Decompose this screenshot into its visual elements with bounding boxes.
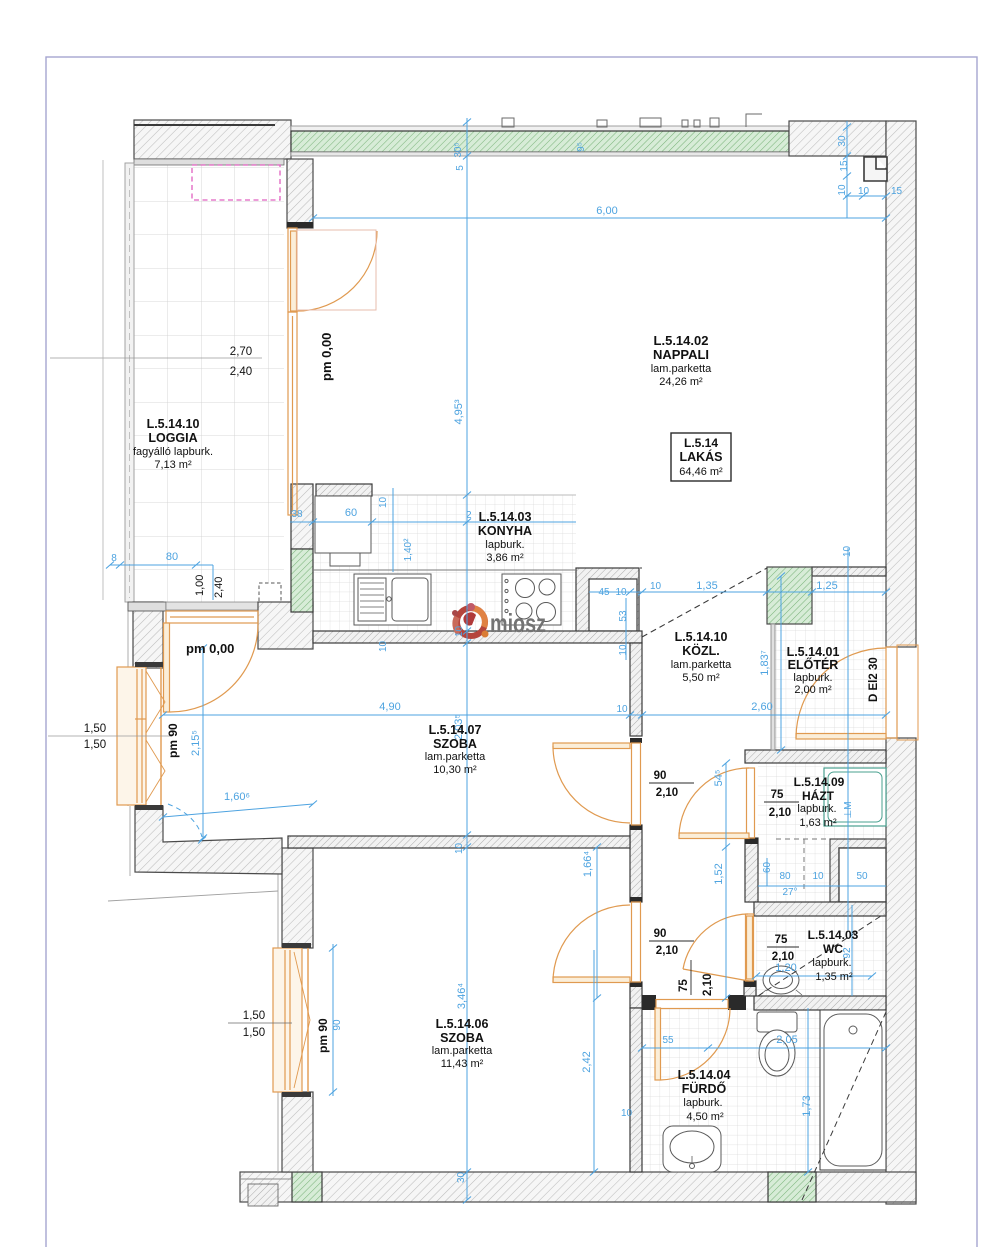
svg-text:10: 10 (615, 587, 627, 598)
svg-text:1,50: 1,50 (243, 1027, 265, 1039)
svg-text:80: 80 (779, 871, 791, 882)
svg-text:2,10: 2,10 (656, 945, 678, 957)
svg-text:6,00: 6,00 (596, 205, 617, 217)
svg-text:KONYHA: KONYHA (478, 524, 532, 538)
svg-text:45: 45 (598, 587, 610, 598)
svg-text:10: 10 (454, 625, 465, 637)
svg-text:53: 53 (618, 610, 629, 622)
svg-text:1,20: 1,20 (775, 962, 796, 974)
svg-text:30⁵: 30⁵ (453, 142, 464, 157)
svg-text:38: 38 (291, 509, 303, 520)
svg-text:L.5.14.07: L.5.14.07 (429, 723, 482, 737)
svg-text:pm 0,00: pm 0,00 (186, 641, 234, 656)
svg-text:fagyálló lapburk.: fagyálló lapburk. (133, 446, 213, 458)
svg-text:90: 90 (654, 928, 667, 940)
svg-text:10: 10 (812, 871, 824, 882)
svg-text:8: 8 (111, 553, 117, 564)
svg-text:10: 10 (616, 704, 628, 715)
svg-text:90: 90 (332, 1019, 343, 1031)
svg-text:pm 0,00: pm 0,00 (319, 333, 334, 381)
svg-text:60: 60 (345, 507, 357, 519)
svg-text:1,73: 1,73 (801, 1095, 813, 1116)
svg-text:L.5.14.10: L.5.14.10 (147, 417, 200, 431)
svg-text:60: 60 (762, 861, 773, 873)
svg-text:1,35: 1,35 (696, 580, 717, 592)
svg-text:4,90: 4,90 (379, 701, 400, 713)
svg-text:10: 10 (858, 186, 870, 197)
svg-text:1,60⁶: 1,60⁶ (224, 791, 250, 803)
svg-text:5: 5 (455, 165, 466, 171)
svg-text:4,95³: 4,95³ (453, 399, 465, 424)
svg-text:50: 50 (856, 871, 868, 882)
svg-text:1,25: 1,25 (816, 580, 837, 592)
svg-text:lapburk.: lapburk. (793, 672, 832, 684)
svg-text:1,00: 1,00 (194, 575, 206, 596)
svg-text:miosz: miosz (490, 608, 546, 638)
svg-text:10: 10 (621, 1108, 633, 1119)
svg-text:7,13 m²: 7,13 m² (154, 459, 192, 471)
svg-text:L.5.14.09: L.5.14.09 (794, 775, 845, 789)
svg-text:90: 90 (654, 770, 667, 782)
svg-text:1,40²: 1,40² (403, 538, 414, 561)
svg-text:1,83⁷: 1,83⁷ (759, 650, 771, 675)
svg-text:WC: WC (823, 942, 843, 956)
svg-text:L.5.14.03: L.5.14.03 (808, 928, 859, 942)
svg-text:lapburk.: lapburk. (485, 539, 524, 551)
svg-text:SZOBA: SZOBA (433, 737, 477, 751)
svg-text:L.5.14.02: L.5.14.02 (654, 333, 709, 348)
svg-text:L.5.14: L.5.14 (684, 436, 718, 450)
svg-text:80: 80 (166, 551, 178, 563)
svg-text:75: 75 (775, 934, 788, 946)
svg-text:L.5.14.04: L.5.14.04 (678, 1068, 731, 1082)
svg-text:27°: 27° (782, 887, 797, 898)
svg-text:LOGGIA: LOGGIA (148, 431, 197, 445)
svg-text:D El2 30: D El2 30 (868, 657, 880, 702)
svg-text:1,50: 1,50 (84, 723, 106, 735)
svg-text:10: 10 (618, 644, 629, 656)
svg-text:5,50 m²: 5,50 m² (682, 672, 720, 684)
svg-text:11,43 m²: 11,43 m² (441, 1058, 484, 1070)
svg-text:64,46 m²: 64,46 m² (679, 466, 723, 478)
svg-text:FÜRDŐ: FÜRDŐ (682, 1081, 727, 1096)
svg-text:10: 10 (842, 545, 853, 557)
svg-text:9⁵: 9⁵ (576, 142, 587, 152)
svg-text:2,40: 2,40 (213, 577, 225, 598)
svg-text:30: 30 (456, 1171, 467, 1183)
svg-text:15: 15 (839, 160, 850, 172)
svg-text:pm 90: pm 90 (166, 723, 180, 758)
svg-text:2,10: 2,10 (772, 951, 794, 963)
svg-text:pm 90: pm 90 (316, 1018, 330, 1053)
svg-text:55: 55 (662, 1035, 674, 1046)
svg-text:2,60: 2,60 (751, 701, 772, 713)
svg-text:4,50 m²: 4,50 m² (686, 1111, 724, 1123)
svg-text:lapburk.: lapburk. (812, 957, 851, 969)
svg-text:1,50: 1,50 (84, 739, 106, 751)
svg-text:ELŐTÉR: ELŐTÉR (788, 657, 839, 672)
svg-text:75: 75 (771, 789, 784, 801)
svg-text:1,35 m²: 1,35 m² (815, 971, 853, 983)
svg-text:SZOBA: SZOBA (440, 1031, 484, 1045)
svg-text:30: 30 (837, 135, 848, 147)
svg-text:lapburk.: lapburk. (683, 1097, 722, 1109)
svg-text:10,30 m²: 10,30 m² (433, 764, 477, 776)
svg-text:NAPPALI: NAPPALI (653, 347, 709, 362)
svg-text:2,10: 2,10 (769, 807, 791, 819)
svg-text:lam.parketta: lam.parketta (651, 363, 712, 375)
svg-text:1,52: 1,52 (713, 863, 725, 884)
svg-text:HÁZT: HÁZT (802, 788, 835, 803)
svg-text:lam.parketta: lam.parketta (671, 659, 732, 671)
svg-text:LAKÁS: LAKÁS (679, 449, 722, 464)
svg-text:⊥M: ⊥M (843, 801, 854, 818)
svg-text:24,26 m²: 24,26 m² (659, 376, 703, 388)
svg-text:lapburk.: lapburk. (797, 803, 836, 815)
svg-text:2,40: 2,40 (230, 366, 252, 378)
svg-text:10: 10 (837, 184, 848, 196)
svg-text:L.5.14.06: L.5.14.06 (436, 1017, 489, 1031)
svg-text:2,10: 2,10 (656, 787, 678, 799)
svg-text:3,86 m²: 3,86 m² (486, 552, 524, 564)
svg-text:2,10: 2,10 (702, 974, 714, 996)
svg-text:2,05: 2,05 (776, 1034, 797, 1046)
svg-text:2,15⁵: 2,15⁵ (190, 730, 202, 756)
svg-text:10: 10 (454, 842, 465, 854)
svg-text:75: 75 (678, 979, 690, 992)
svg-text:lam.parketta: lam.parketta (425, 751, 486, 763)
svg-text:1,63 m²: 1,63 m² (799, 817, 837, 829)
svg-text:2,00 m²: 2,00 m² (794, 684, 832, 696)
svg-text:1,66⁴: 1,66⁴ (582, 851, 594, 877)
svg-text:54⁵: 54⁵ (713, 770, 725, 787)
svg-text:lam.parketta: lam.parketta (432, 1045, 493, 1057)
svg-text:15: 15 (891, 186, 903, 197)
svg-text:L.5.14.03: L.5.14.03 (479, 510, 532, 524)
svg-text:2,70: 2,70 (230, 346, 252, 358)
svg-text:L.5.14.01: L.5.14.01 (787, 645, 840, 659)
svg-text:1,50: 1,50 (243, 1010, 265, 1022)
svg-text:3,46⁴: 3,46⁴ (456, 983, 468, 1009)
svg-text:10: 10 (378, 496, 389, 508)
svg-text:KÖZL.: KÖZL. (682, 643, 720, 658)
svg-text:2,42: 2,42 (581, 1051, 593, 1072)
svg-text:10: 10 (650, 581, 662, 592)
svg-text:L.5.14.10: L.5.14.10 (675, 630, 728, 644)
svg-text:10: 10 (378, 640, 389, 652)
svg-text:2: 2 (466, 510, 472, 521)
